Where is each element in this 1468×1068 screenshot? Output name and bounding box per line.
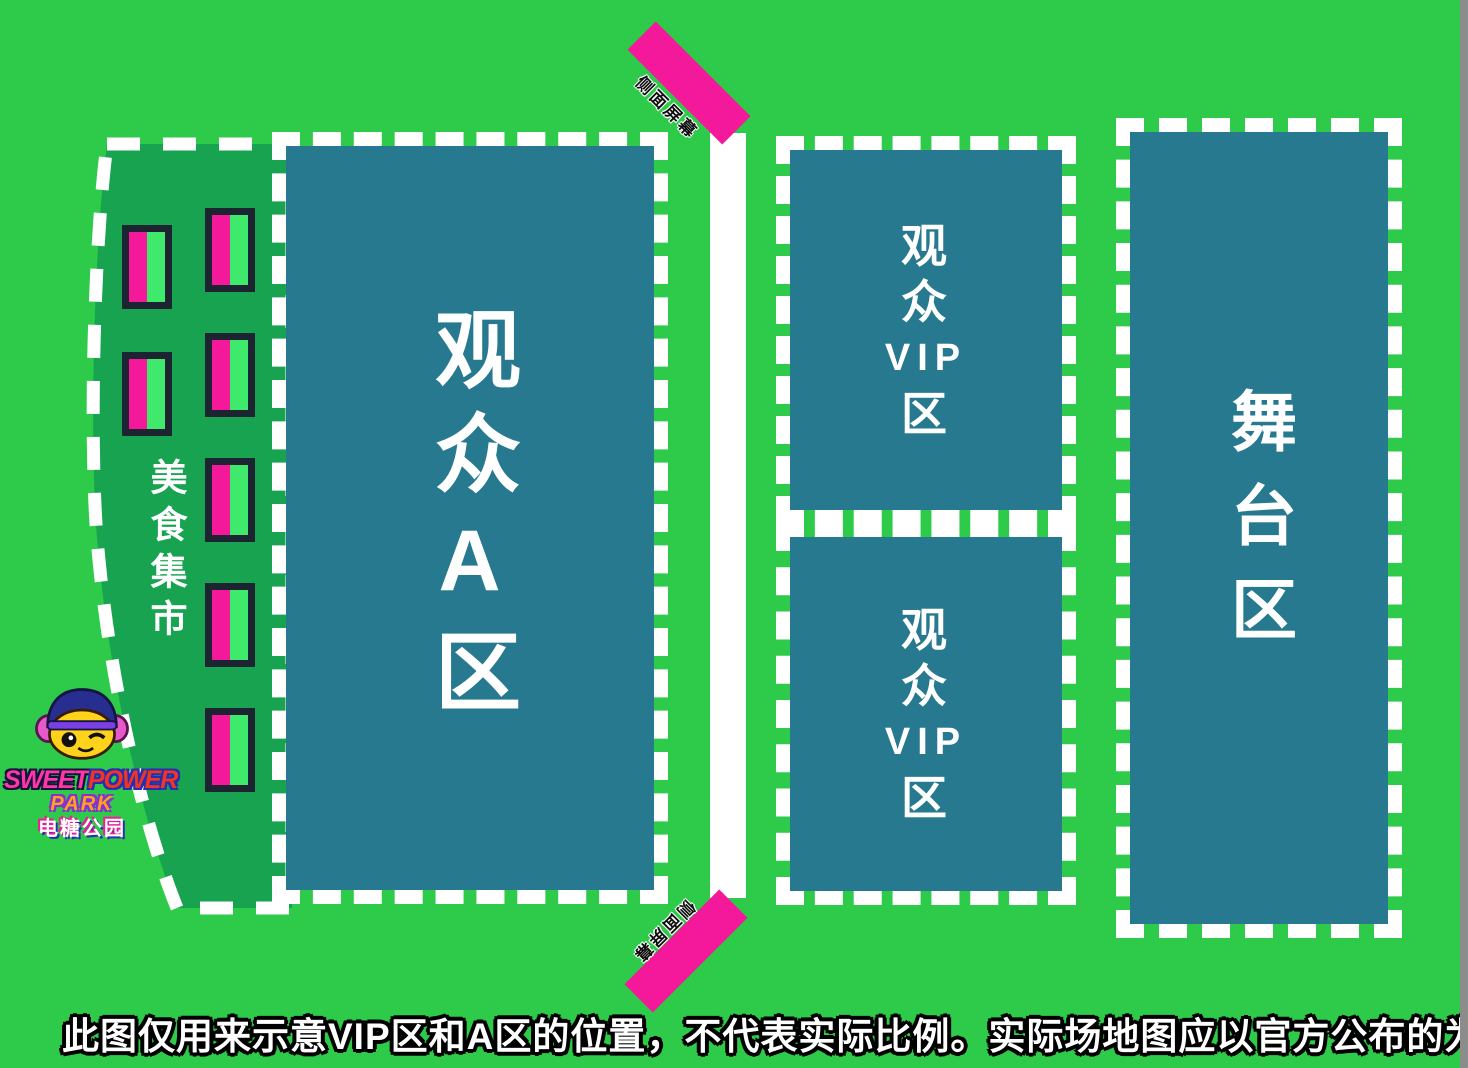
zone-audience-a-label: 观众A区 <box>408 305 533 731</box>
vip-label-line: 区 <box>901 390 951 438</box>
zone-stage: 舞台区 <box>1116 118 1402 938</box>
vip-label-line: VIP <box>885 718 967 766</box>
disclaimer-text: 此图仅用来示意VIP区和A区的位置，不代表实际比例。实际场地图应以官方公布的为准… <box>62 1006 1468 1060</box>
center-aisle <box>710 133 746 898</box>
vendor-booth <box>205 708 255 792</box>
zone-vip-front-label: 观 众 VIP 区 <box>885 222 967 438</box>
mascot-logo-icon <box>34 684 130 762</box>
vip-label-line: 众 <box>901 662 951 710</box>
zone-vip-front: 观 众 VIP 区 <box>776 136 1076 524</box>
vendor-booth <box>205 583 255 667</box>
vip-label-line: VIP <box>885 334 967 382</box>
brand-logo: SWEETPOWER PARK 电糖公园 <box>4 684 160 843</box>
food-market-label: 美食集市 <box>138 458 192 646</box>
brand-logo-wordmark: SWEETPOWER <box>4 767 160 793</box>
vip-label-line: 观 <box>901 606 951 654</box>
brand-word-sweet: SWEET <box>4 766 88 794</box>
brand-name-chinese: 电糖公园 <box>4 815 160 843</box>
vendor-booth <box>205 458 255 542</box>
brand-word-park: PARK <box>4 793 160 815</box>
vendor-booth <box>122 225 172 309</box>
vip-label-line: 众 <box>901 278 951 326</box>
zone-stage-label: 舞台区 <box>1211 387 1307 669</box>
venue-map: 美食集市 观众A区 侧面屏幕 侧面屏幕 观 众 VIP 区 观 众 VIP 区 … <box>0 0 1468 1068</box>
vendor-booth <box>122 352 172 436</box>
zone-vip-rear: 观 众 VIP 区 <box>776 523 1076 905</box>
vendor-booth <box>205 208 255 292</box>
zone-vip-rear-label: 观 众 VIP 区 <box>885 606 967 822</box>
vip-label-line: 观 <box>901 222 951 270</box>
brand-word-power: POWER <box>88 766 177 794</box>
vip-label-line: 区 <box>901 774 951 822</box>
scrollbar[interactable] <box>1460 0 1468 1068</box>
vendor-booth <box>205 333 255 417</box>
zone-audience-a: 观众A区 <box>272 132 668 904</box>
